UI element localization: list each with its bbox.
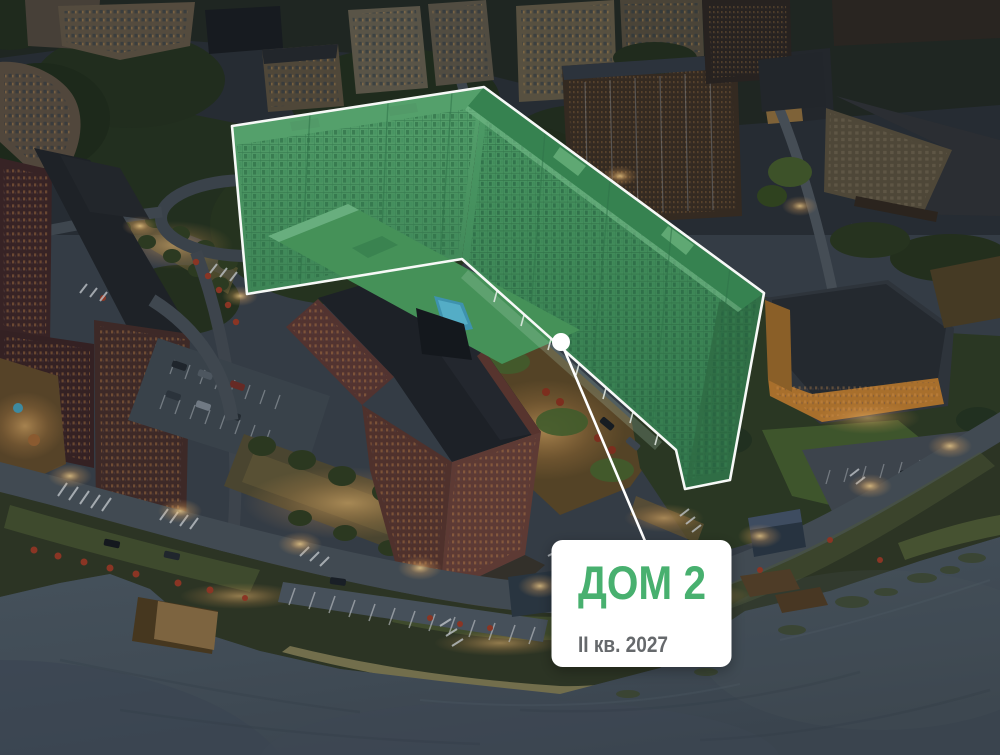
svg-text:ДОМ 2: ДОМ 2 [578,556,706,609]
svg-text:II кв. 2027: II кв. 2027 [578,632,668,657]
